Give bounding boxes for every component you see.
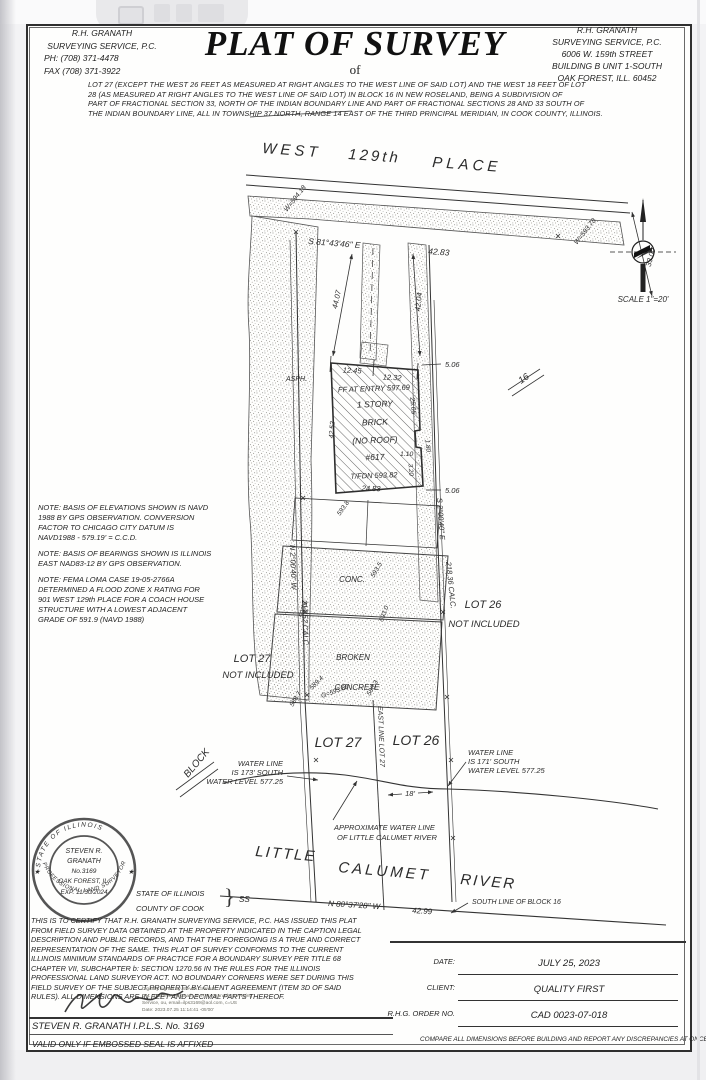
client-value: QUALITY FIRST (462, 984, 676, 995)
cert-line: FROM FIELD SURVEY DATA OBTAINED AT THE P… (31, 926, 397, 936)
note-line: GRADE OF 591.9 (NAVD 1988) (38, 615, 278, 625)
valid-seal-line: VALID ONLY IF EMBOSSED SEAL IS AFFIXED (32, 1039, 213, 1049)
jurat-county: COUNTY OF COOK (136, 901, 204, 916)
note-line: 1988 BY GPS OBSERVATION. CONVERSION (38, 513, 278, 523)
pdf-button-glyph (154, 4, 170, 22)
firm-street: 6006 W. 159th STREET (528, 48, 686, 60)
surveyor-name-line: STEVEN R. GRANATH I.P.L.S. No. 3169 (32, 1021, 204, 1032)
digsig-line: Digitally signed by Steven Granath (142, 986, 252, 993)
cert-line: REPRESENTATION OF THE SAME. THIS PLAT OF… (31, 945, 397, 955)
order-value: CAD 0023-07-018 (462, 1010, 676, 1021)
jurat-ss: SS (239, 895, 250, 904)
cert-line: THIS IS TO CERTIFY THAT R.H. GRANATH SUR… (31, 916, 397, 926)
digsig-line: Date: 2023.07.25 11:14:41 -05'00' (142, 1007, 252, 1014)
cert-line: PROFESSIONAL LAND SURVEYOR ACT. NO BOUND… (31, 973, 397, 983)
note-line: NOTE: BASIS OF BEARINGS SHOWN IS ILLINOI… (38, 549, 278, 559)
survey-notes: NOTE: BASIS OF ELEVATIONS SHOWN IS NAVD … (38, 503, 278, 625)
date-underline (458, 974, 678, 975)
divider (29, 1034, 393, 1035)
firm-type: SURVEYING SERVICE, P.C. (36, 40, 168, 53)
firm-block-right: R.H. GRANATH SURVEYING SERVICE, P.C. 600… (528, 24, 686, 84)
pdf-button-glyph (198, 4, 224, 22)
note-line: 901 WEST 129th PLACE FOR A COACH HOUSE (38, 595, 278, 605)
note-line: NAVD1988 - 579.19' = C.C.D. (38, 533, 278, 543)
jurat-state: STATE OF ILLINOIS (136, 886, 204, 901)
client-label: CLIENT: (330, 983, 455, 992)
order-underline (458, 1026, 678, 1027)
client-underline (458, 1000, 678, 1001)
cert-line: DESCRIPTION AND PUBLIC RECORDS, AND THAT… (31, 935, 397, 945)
digital-signature-block: Digitally signed by Steven Granath DN: c… (142, 986, 252, 1014)
legal-description: LOT 27 (EXCEPT THE WEST 26 FEET AS MEASU… (88, 80, 618, 119)
digsig-line: DN: cn=Steven Granath, o=R.H. Granath Su… (142, 993, 252, 1000)
legal-line: PART OF FRACTIONAL SECTION 33, NORTH OF … (88, 99, 618, 109)
pdf-button-glyph (176, 4, 192, 22)
firm-building: BUILDING B UNIT 1-SOUTH (528, 60, 686, 72)
note-line: DETERMINED A FLOOD ZONE X RATING FOR (38, 585, 278, 595)
note-line: FACTOR TO CHICAGO CITY DATUM IS (38, 523, 278, 533)
legal-line: LOT 27 (EXCEPT THE WEST 26 FEET AS MEASU… (88, 80, 618, 90)
document-icon (118, 6, 144, 25)
legal-line: THE INDIAN BOUNDARY LINE, ALL IN TOWNSHI… (88, 109, 618, 119)
jurat-brace: } (224, 884, 235, 910)
jurat: STATE OF ILLINOIS COUNTY OF COOK (136, 886, 204, 916)
firm-block-left: R.H. GRANATH SURVEYING SERVICE, P.C. PH:… (36, 27, 168, 77)
firm-phone: PH: (708) 371-4478 (36, 52, 168, 65)
compare-dimensions-line: COMPARE ALL DIMENSIONS BEFORE BUILDING A… (420, 1036, 690, 1043)
note-line: STRUCTURE WITH A LOWEST ADJACENT (38, 605, 278, 615)
photo-bottom-margin (0, 1050, 706, 1080)
screenshot-root: { "header": { "left": ["R.H. GRANATH", "… (0, 0, 706, 1080)
page-title: PLAT OF SURVEY (200, 24, 510, 64)
legal-line: 28 (AS MEASURED AT RIGHT ANGLES TO THE W… (88, 90, 618, 100)
note-line: NOTE: FEMA LOMA CASE 19-05-2766A (38, 575, 278, 585)
note-line: EAST NAD83-12 BY GPS OBSERVATION. (38, 559, 278, 569)
firm-name: R.H. GRANATH (528, 24, 686, 36)
title-block-border (390, 941, 686, 943)
firm-type: SURVEYING SERVICE, P.C. (528, 36, 686, 48)
digsig-line: Service, ou, email=ilps3169@aol.com, c=U… (142, 1000, 252, 1007)
photo-left-edge (0, 0, 16, 1080)
page-subtitle: of (200, 62, 510, 78)
photo-right-edge (697, 0, 700, 1080)
firm-fax: FAX (708) 371-3922 (36, 65, 168, 78)
note-line: NOTE: BASIS OF ELEVATIONS SHOWN IS NAVD (38, 503, 278, 513)
order-label: R.H.G. ORDER NO. (330, 1009, 455, 1018)
date-label: DATE: (330, 957, 455, 966)
date-value: JULY 25, 2023 (462, 958, 676, 969)
firm-name: R.H. GRANATH (36, 27, 168, 40)
